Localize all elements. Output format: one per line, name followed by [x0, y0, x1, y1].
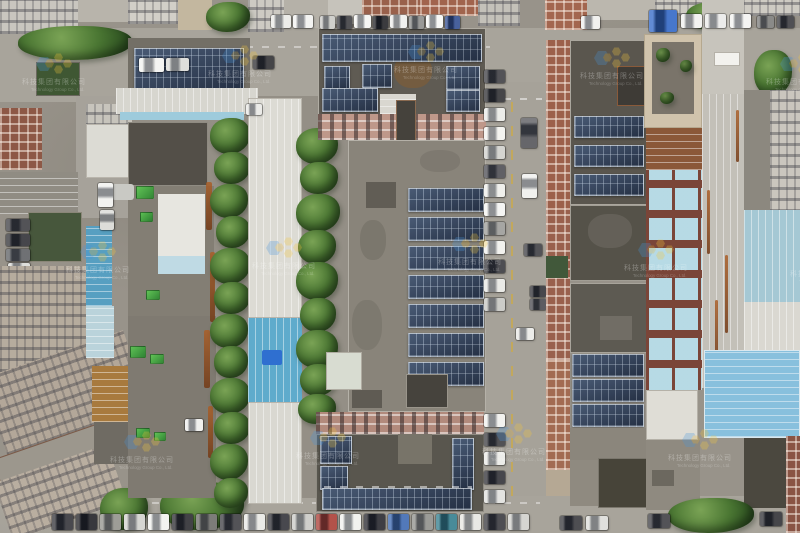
parked-car: [484, 514, 505, 530]
parked-car: [6, 234, 30, 246]
rooftop-solar-array: [452, 438, 474, 490]
parked-car: [460, 514, 481, 530]
green-machine: [150, 354, 164, 364]
parked-car: [484, 414, 505, 427]
parked-car: [52, 514, 73, 530]
aerial-photo: 科技集团有限公司 Technology Group Co., Ltd. 科技集团…: [0, 0, 800, 533]
roof-structure: [652, 470, 674, 486]
parked-car: [337, 16, 352, 29]
parked-car: [484, 298, 505, 311]
parked-car: [586, 516, 608, 530]
right-road-lane-line: [511, 92, 513, 496]
parked-car: [484, 471, 505, 484]
parked-car: [293, 15, 313, 28]
parked-car-teal: [436, 514, 457, 530]
skylight-pattern-roof: [646, 170, 702, 390]
parked-car: [373, 16, 388, 29]
car-on-road: [100, 210, 114, 230]
rooftop-solar-array: [322, 34, 482, 62]
solar-panel-row: [408, 246, 484, 270]
blue-white-roof: [86, 306, 114, 358]
truck-on-road: [521, 118, 537, 148]
rust-streak: [736, 110, 739, 162]
solar-panel-row: [408, 217, 484, 241]
parked-car: [484, 452, 505, 465]
dark-roof-building: [128, 122, 208, 186]
parked-car: [560, 516, 582, 530]
top-building: [478, 0, 520, 26]
parked-car: [246, 104, 262, 115]
brick-facade-strip: [546, 40, 570, 210]
parked-car: [340, 514, 361, 530]
parked-car: [508, 514, 529, 530]
roof-stain: [360, 220, 386, 260]
stair-tower: [406, 374, 448, 408]
solar-panel-row: [572, 354, 644, 377]
parked-car: [292, 514, 313, 530]
parked-car-red: [316, 514, 337, 530]
solar-panel-row: [574, 116, 644, 138]
green-machine: [140, 212, 153, 222]
blue-truck: [649, 10, 677, 32]
rust-pipe: [208, 406, 213, 458]
beige-facade-building: [770, 90, 800, 212]
top-building: [78, 0, 128, 22]
parked-car: [760, 512, 782, 526]
parked-car: [196, 514, 217, 530]
grey-roof: [0, 172, 78, 214]
solar-panel-row: [574, 145, 644, 167]
parked-car: [648, 514, 670, 528]
solar-panel-row: [408, 188, 484, 212]
parked-car: [484, 490, 505, 503]
rust-streak: [725, 255, 728, 333]
teal-metal-roof: [86, 226, 112, 306]
parked-car: [730, 14, 751, 28]
parked-car: [354, 15, 371, 28]
south-building-facade-band: [316, 412, 484, 434]
big-blue-metal-roof: [704, 350, 800, 438]
parked-car: [484, 222, 505, 235]
solar-panel-row: [572, 379, 644, 402]
water-tank: [112, 184, 134, 200]
parked-car: [172, 514, 193, 530]
green-machine: [154, 432, 166, 441]
roof-structure: [600, 316, 632, 340]
parked-car: [268, 514, 289, 530]
white-building: [646, 390, 698, 440]
long-white-building: [248, 402, 302, 504]
parked-car: [484, 279, 505, 292]
small-roof: [570, 460, 598, 506]
parked-car: [409, 16, 424, 29]
parked-car: [777, 16, 794, 28]
parked-car: [484, 127, 505, 140]
blue-tarp: [262, 350, 282, 365]
parked-car: [524, 244, 542, 256]
parked-car: [484, 146, 505, 159]
parked-car: [364, 514, 385, 530]
blue-grey-metal-roof: [744, 210, 800, 302]
parked-car: [484, 203, 505, 216]
parked-car: [6, 249, 30, 261]
parked-car: [530, 286, 546, 297]
parked-car: [6, 219, 30, 231]
factory-roof: [128, 316, 216, 498]
brick-building: [362, 0, 420, 16]
parked-car: [220, 514, 241, 530]
facade-base: [546, 470, 570, 496]
car-on-road: [98, 183, 113, 207]
long-white-building: [248, 98, 302, 318]
roof-structure: [366, 182, 396, 208]
parked-car: [412, 514, 433, 530]
car-on-road: [522, 174, 537, 198]
brick-facade-strip: [546, 210, 570, 360]
white-big-roof-blue-part: [158, 256, 205, 274]
white-strip-roof: [116, 88, 258, 114]
green-machine: [146, 290, 160, 300]
brick-building-edge: [786, 436, 800, 533]
parked-car: [757, 16, 774, 28]
brick-building-low: [0, 108, 42, 170]
grey-roof: [744, 90, 770, 210]
parked-car: [76, 514, 97, 530]
parked-car: [253, 56, 274, 69]
roof-structure: [398, 434, 432, 464]
parked-car-blue: [388, 514, 409, 530]
parked-car: [484, 241, 505, 254]
parked-car: [581, 16, 600, 29]
pale-roof: [326, 352, 362, 390]
rust-pipe: [204, 330, 210, 388]
concrete-roof: [570, 428, 650, 460]
parked-car: [124, 514, 145, 530]
parked-car: [705, 14, 726, 28]
roof-stain: [352, 300, 382, 350]
parked-car: [681, 14, 702, 28]
rooftop-solar-array: [446, 90, 480, 112]
brick-facade-strip: [546, 360, 570, 470]
parked-car: [484, 108, 505, 121]
rooftop-solar-array: [362, 64, 392, 88]
white-big-roof: [158, 194, 205, 256]
parked-car: [139, 58, 164, 72]
roof-stain: [420, 150, 460, 172]
parked-car: [445, 16, 460, 29]
rooftop-solar-array: [322, 488, 472, 510]
rooftop-solar-array: [446, 66, 480, 90]
parked-car: [484, 433, 505, 446]
white-metal-roof: [744, 302, 800, 350]
green-lawn-roof: [36, 62, 80, 96]
rooftop-solar-array: [322, 88, 378, 112]
parapet-dots: [324, 486, 472, 488]
parked-car: [484, 89, 505, 102]
brick-building: [420, 0, 478, 16]
solar-panel-row: [572, 404, 644, 427]
parked-car: [390, 15, 407, 28]
parked-car: [484, 184, 505, 197]
parked-car: [148, 514, 169, 530]
solar-panel-row: [408, 275, 484, 299]
parked-car: [166, 58, 189, 71]
parked-car: [484, 165, 505, 178]
solar-panel-row: [408, 304, 484, 328]
green-machine: [130, 346, 146, 358]
rooftop-box: [714, 52, 740, 66]
top-building: [128, 0, 178, 24]
hexagon-yellow-icon: [700, 441, 709, 450]
roof-stain: [588, 214, 632, 248]
parked-car: [484, 70, 505, 83]
green-machine: [136, 428, 150, 438]
roof-structure: [352, 390, 382, 408]
parked-car: [320, 16, 335, 29]
parked-car: [244, 514, 265, 530]
green-machine: [136, 186, 154, 199]
parked-car: [484, 260, 505, 273]
parked-car: [271, 15, 291, 28]
white-roof-building: [86, 124, 130, 178]
green-lawn-roof: [546, 256, 568, 278]
pond-green-roof: [28, 212, 82, 262]
rusty-striped-roof: [646, 128, 702, 170]
rooftop-solar-array: [324, 66, 350, 90]
parked-car: [516, 328, 534, 340]
car-in-yard: [185, 419, 203, 431]
rooftop-solar-array: [320, 436, 352, 464]
parked-car: [426, 15, 443, 28]
rust-streak: [707, 190, 710, 254]
parked-car: [530, 299, 546, 310]
parked-car: [100, 514, 121, 530]
solar-panel-row: [574, 174, 644, 196]
solar-panel-row: [408, 333, 484, 357]
